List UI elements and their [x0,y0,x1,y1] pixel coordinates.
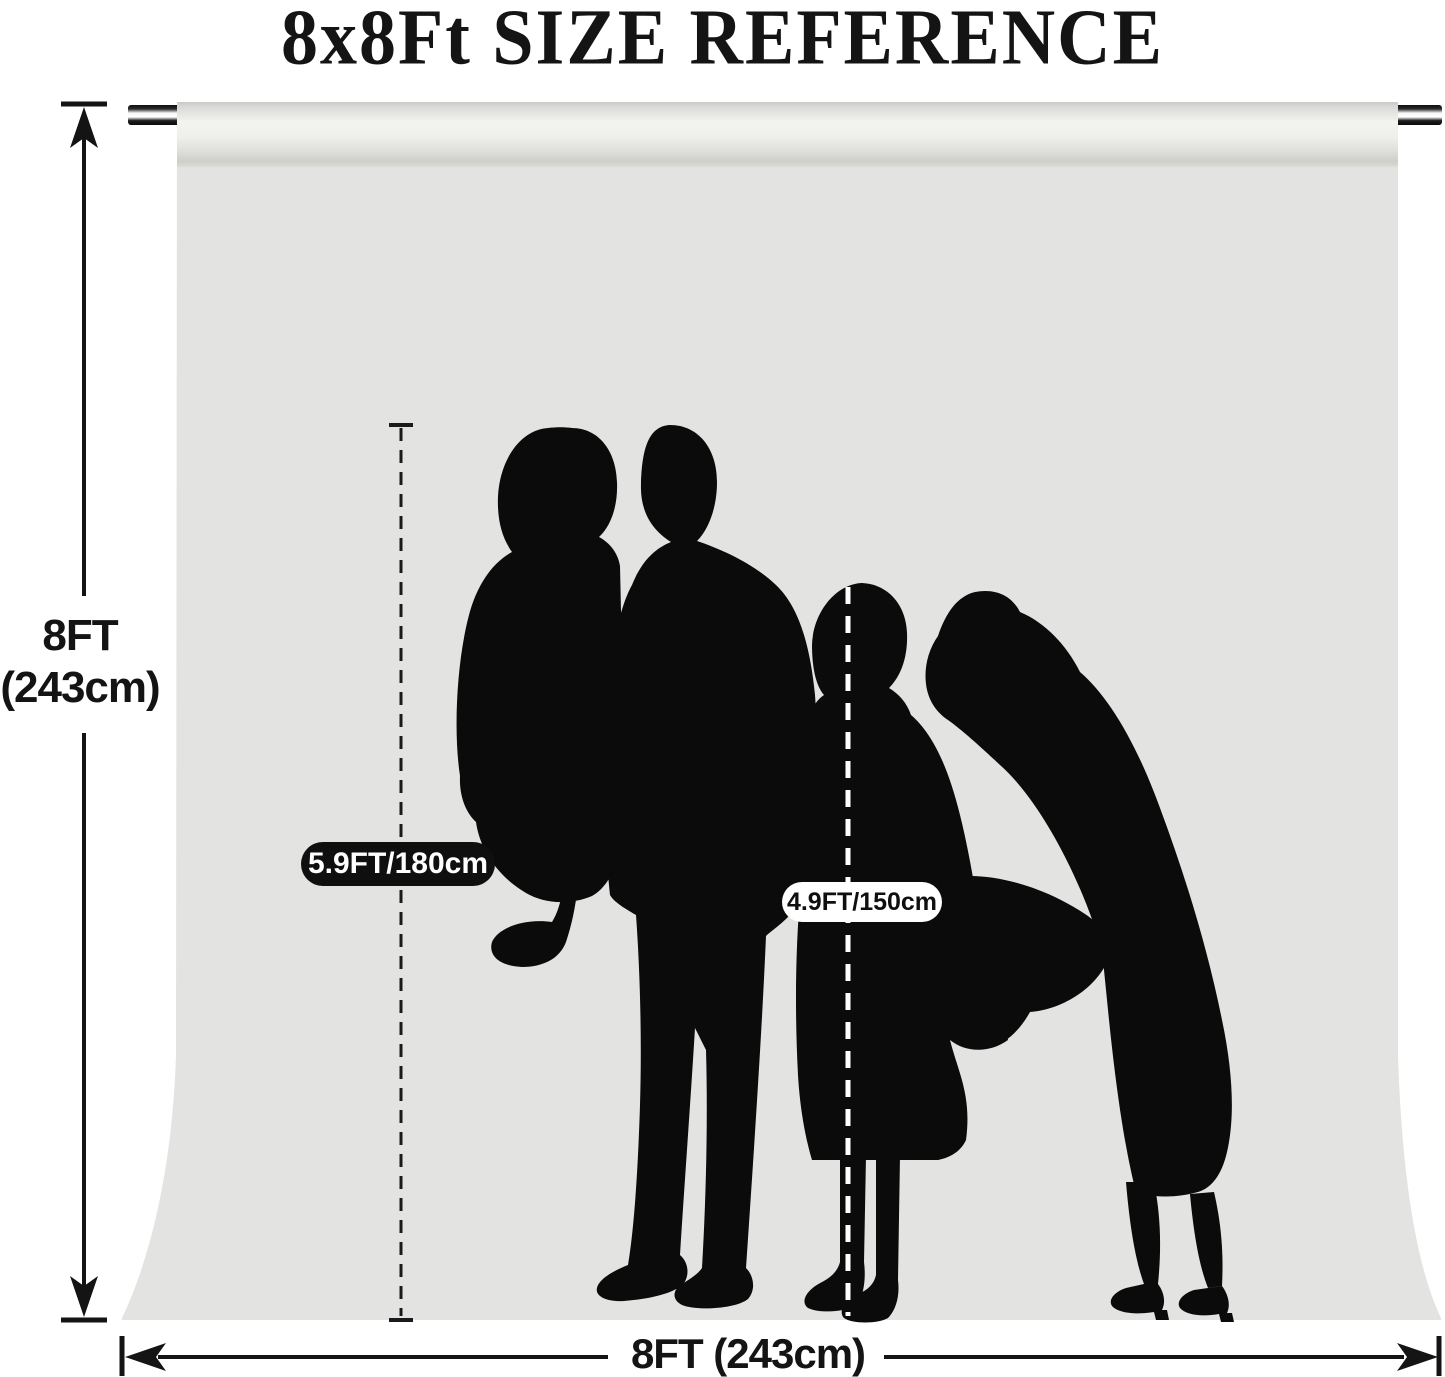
size-reference-diagram: 8x8Ft SIZE REFERENCE 8FT (243cm) 8FT (24… [0,0,1445,1377]
backdrop-top-roll [177,102,1398,168]
backdrop-height-label: 8FT (243cm) [0,610,170,714]
backdrop-width-label: 8FT (243cm) [610,1330,886,1377]
diagram-graphics [0,0,1445,1377]
backdrop-height-cm: (243cm) [0,662,170,714]
adult-height-badge: 5.9FT/180cm [301,842,495,886]
page-title: 8x8Ft SIZE REFERENCE [0,0,1445,84]
backdrop-height-feet: 8FT [0,610,170,662]
child-height-badge: 4.9FT/150cm [782,882,942,922]
